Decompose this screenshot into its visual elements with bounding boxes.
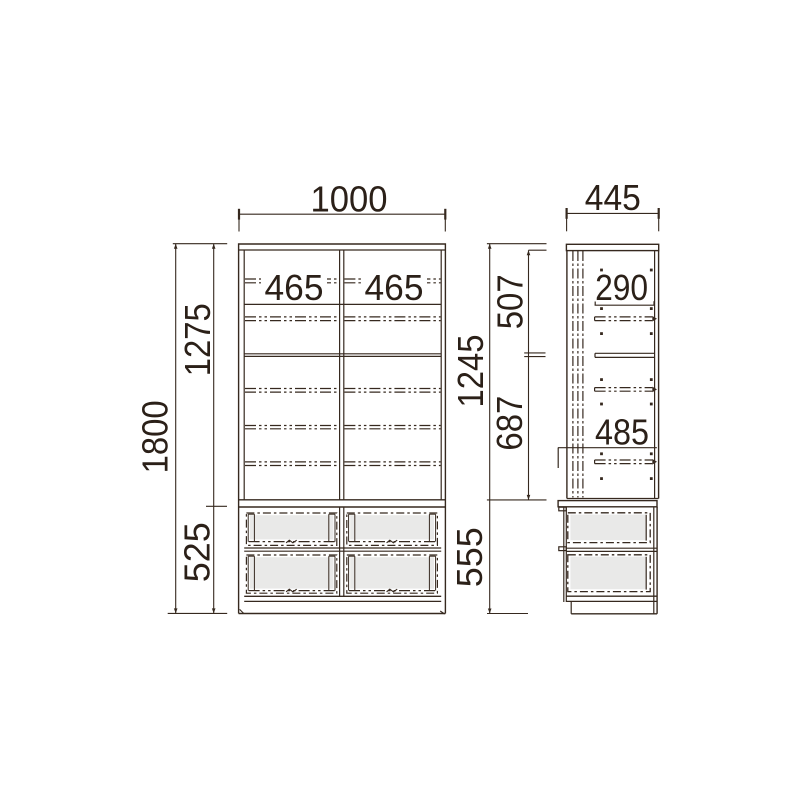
svg-text:1245: 1245 [450,335,491,408]
svg-text:507: 507 [489,274,530,329]
svg-text:555: 555 [449,527,490,587]
svg-text:525: 525 [177,522,218,582]
svg-text:485: 485 [595,411,649,452]
svg-text:465: 465 [365,267,424,308]
svg-text:1800: 1800 [134,400,175,473]
svg-text:290: 290 [595,267,648,308]
svg-text:687: 687 [489,396,530,451]
svg-text:1275: 1275 [177,303,218,376]
svg-text:445: 445 [585,177,641,218]
svg-text:465: 465 [265,267,324,308]
svg-text:1000: 1000 [311,178,388,219]
